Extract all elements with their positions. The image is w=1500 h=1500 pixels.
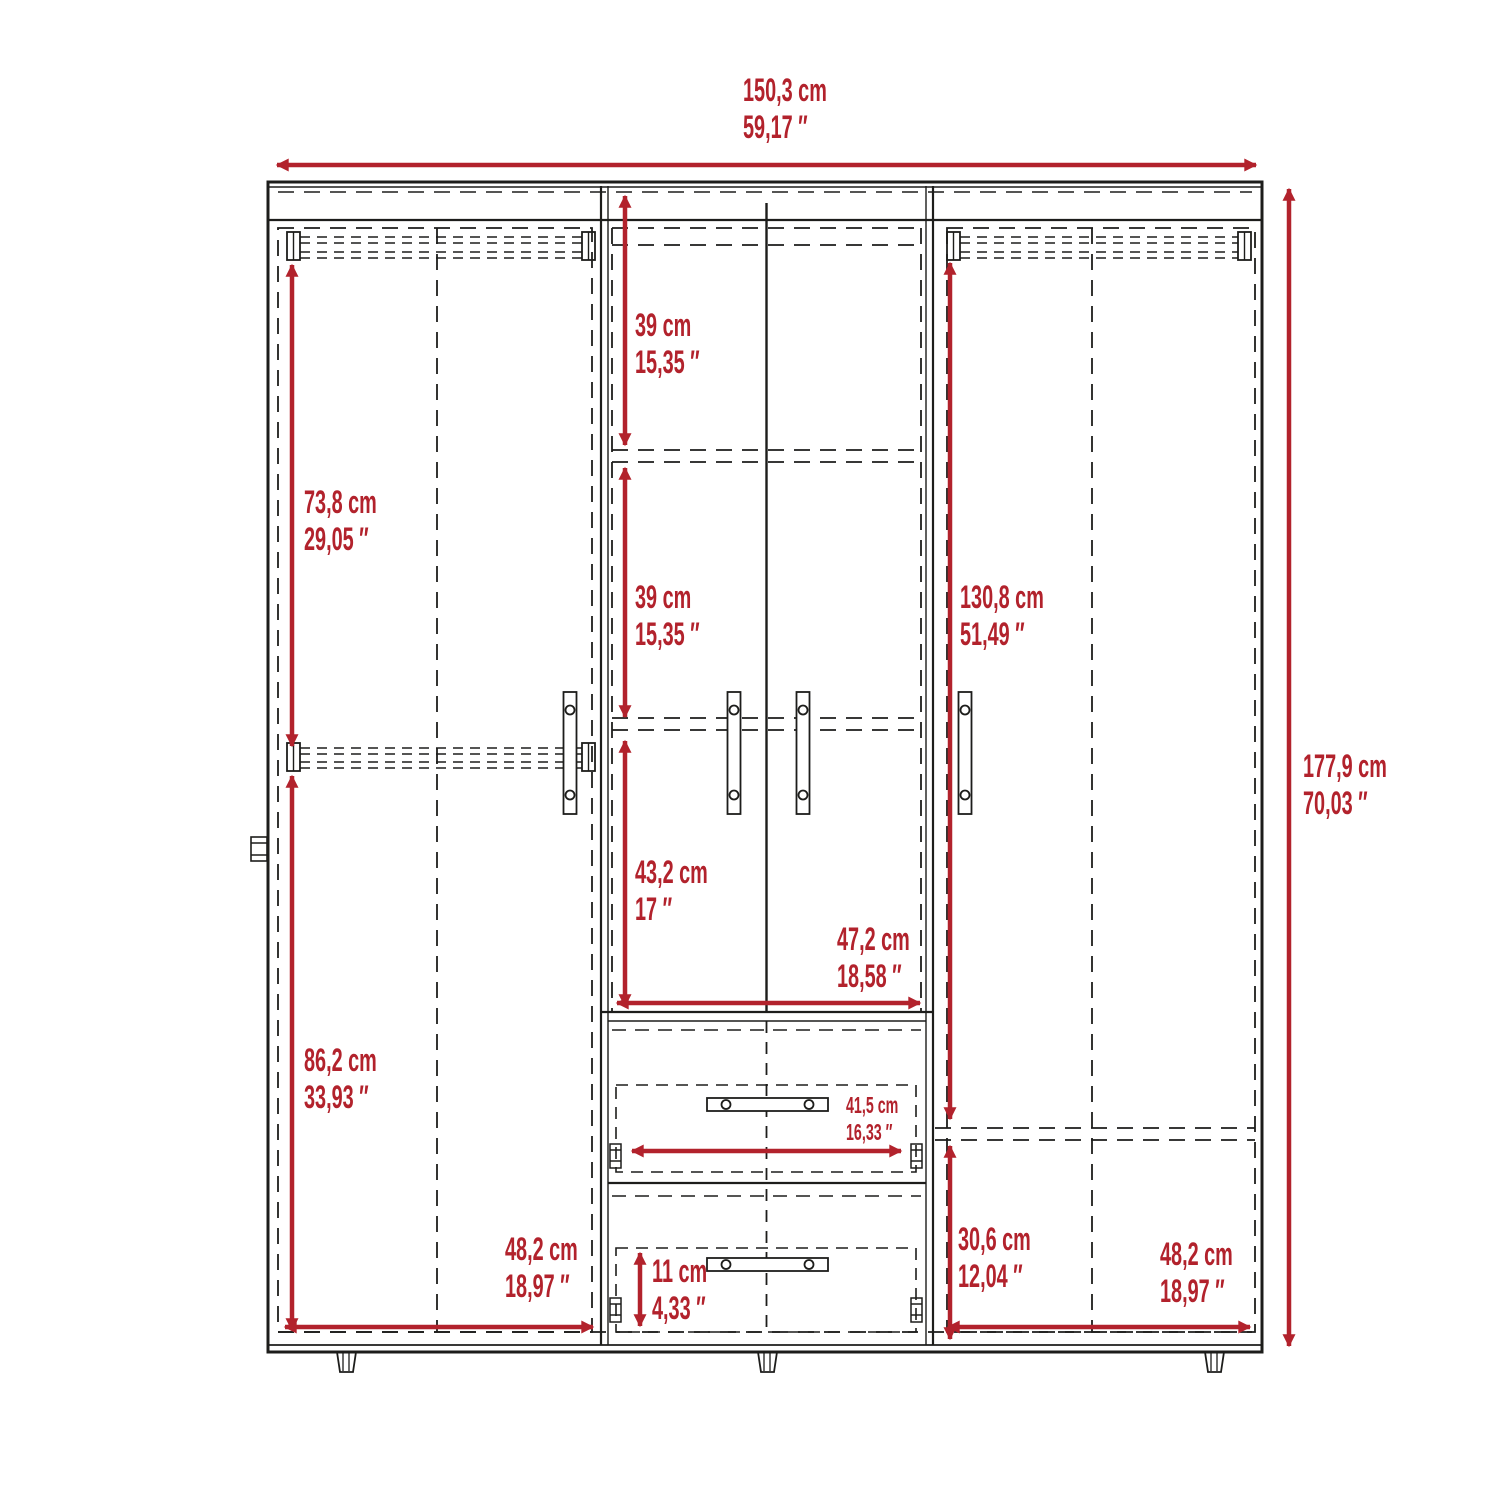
dim-left-lower-height-cm: 86,2 cm	[304, 1042, 377, 1079]
dim-overall-width: 150,3 cm 59,17 ″	[743, 72, 827, 146]
dim-center-width: 47,2 cm 18,58 ″	[837, 921, 910, 995]
dim-left-upper-height-in: 29,05 ″	[304, 521, 377, 558]
left-middle-hanging-rod	[300, 748, 582, 768]
dim-left-lower-height: 86,2 cm 33,93 ″	[304, 1042, 377, 1116]
center-right-door-handle	[797, 692, 810, 814]
dim-center-lower-height: 43,2 cm 17 ″	[635, 854, 708, 928]
dim-center-top-shelf: 39 cm 15,35 ″	[635, 307, 700, 381]
left-top-hanging-rod	[300, 237, 582, 258]
dim-right-hanging-height-cm: 130,8 cm	[960, 579, 1044, 616]
dim-left-width-in: 18,97 ″	[505, 1268, 578, 1305]
dim-center-middle-shelf-cm: 39 cm	[635, 579, 700, 616]
dim-drawer-width: 41,5 cm 16,33 ″	[846, 1092, 898, 1146]
dim-right-hanging-height-in: 51,49 ″	[960, 616, 1044, 653]
dim-left-lower-height-in: 33,93 ″	[304, 1079, 377, 1116]
dim-center-middle-shelf-in: 15,35 ″	[635, 616, 700, 653]
dim-right-lower-height-in: 12,04 ″	[958, 1258, 1031, 1295]
cabinet-feet	[337, 1352, 1224, 1372]
dim-drawer-width-in: 16,33 ″	[846, 1119, 898, 1146]
dim-left-width-cm: 48,2 cm	[505, 1231, 578, 1268]
center-left-door-handle	[728, 692, 741, 814]
dimension-arrows	[277, 165, 1289, 1346]
dim-center-lower-height-in: 17 ″	[635, 891, 708, 928]
upper-drawer-handle	[707, 1098, 828, 1111]
technical-drawing	[0, 0, 1500, 1500]
dim-center-top-shelf-cm: 39 cm	[635, 307, 700, 344]
left-section-lines	[251, 228, 595, 1332]
dim-left-width: 48,2 cm 18,97 ″	[505, 1231, 578, 1305]
dim-drawer-height: 11 cm 4,33 ″	[652, 1253, 707, 1327]
right-hanging-rod	[960, 237, 1238, 258]
dim-drawer-height-cm: 11 cm	[652, 1253, 707, 1290]
right-door-handle	[959, 692, 972, 814]
dim-overall-height-cm: 177,9 cm	[1303, 748, 1387, 785]
dim-drawer-width-cm: 41,5 cm	[846, 1092, 898, 1119]
dim-center-top-shelf-in: 15,35 ″	[635, 344, 700, 381]
dim-right-width: 48,2 cm 18,97 ″	[1160, 1236, 1233, 1310]
left-door-handle	[564, 692, 577, 814]
dim-overall-height: 177,9 cm 70,03 ″	[1303, 748, 1387, 822]
dim-center-width-cm: 47,2 cm	[837, 921, 910, 958]
right-section-lines	[935, 228, 1255, 1332]
dim-left-upper-height-cm: 73,8 cm	[304, 484, 377, 521]
dim-center-middle-shelf: 39 cm 15,35 ″	[635, 579, 700, 653]
dim-right-lower-height: 30,6 cm 12,04 ″	[958, 1221, 1031, 1295]
dim-overall-height-in: 70,03 ″	[1303, 785, 1387, 822]
lower-drawer-handle	[707, 1258, 828, 1271]
cabinet-outline	[268, 182, 1262, 1352]
dim-right-lower-height-cm: 30,6 cm	[958, 1221, 1031, 1258]
left-edge-hinge	[251, 837, 268, 861]
dim-drawer-height-in: 4,33 ″	[652, 1290, 707, 1327]
dim-overall-width-in: 59,17 ″	[743, 109, 827, 146]
dim-center-lower-height-cm: 43,2 cm	[635, 854, 708, 891]
dim-right-hanging-height: 130,8 cm 51,49 ″	[960, 579, 1044, 653]
wardrobe-dimension-diagram: 150,3 cm 59,17 ″ 177,9 cm 70,03 ″ 73,8 c…	[0, 0, 1500, 1500]
dim-left-upper-height: 73,8 cm 29,05 ″	[304, 484, 377, 558]
dim-overall-width-cm: 150,3 cm	[743, 72, 827, 109]
dim-right-width-cm: 48,2 cm	[1160, 1236, 1233, 1273]
dim-center-width-in: 18,58 ″	[837, 958, 910, 995]
dim-right-width-in: 18,97 ″	[1160, 1273, 1233, 1310]
